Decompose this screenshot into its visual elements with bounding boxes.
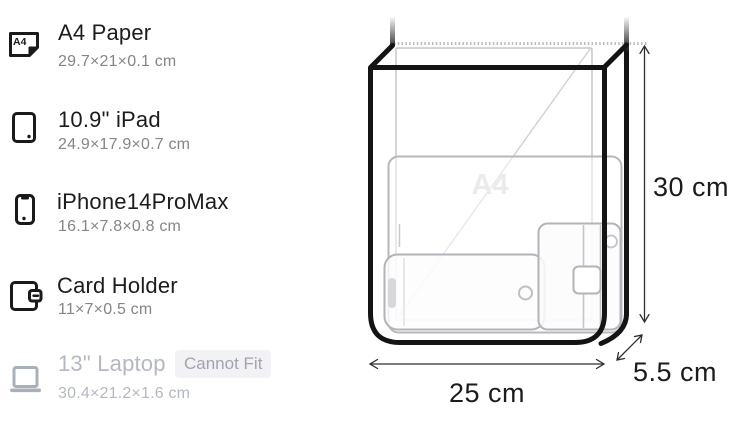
width-label: 25 cm <box>449 378 525 408</box>
iphone-outline <box>385 255 545 330</box>
bag-diagram: A4 30 cm <box>0 0 750 426</box>
card-holder-outline <box>539 224 621 330</box>
width-dimension: 25 cm <box>370 360 604 409</box>
height-label: 30 cm <box>653 172 729 202</box>
depth-label: 5.5 cm <box>633 357 717 387</box>
height-dimension: 30 cm <box>640 46 729 322</box>
depth-dimension: 5.5 cm <box>617 335 717 387</box>
